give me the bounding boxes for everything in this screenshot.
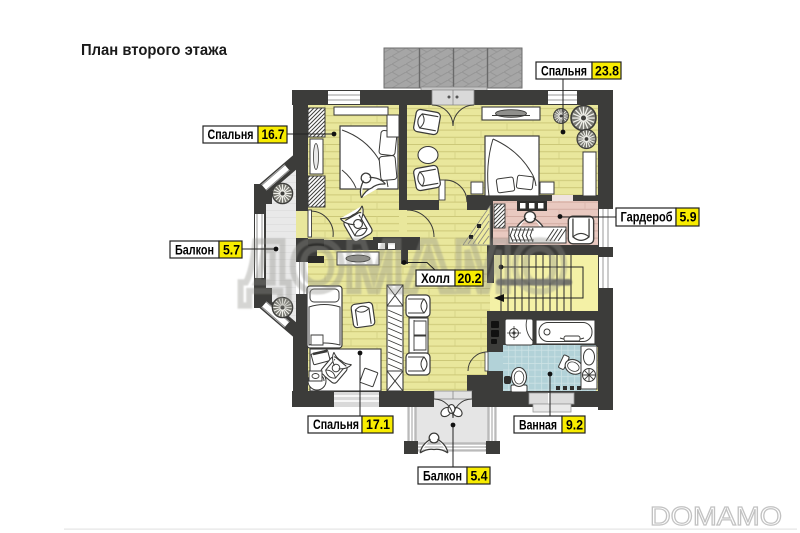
svg-text:Ванная: Ванная — [519, 417, 557, 433]
svg-text:Балкон: Балкон — [175, 242, 214, 258]
svg-text:Балкон: Балкон — [423, 468, 462, 484]
svg-text:Спальня: Спальня — [541, 63, 587, 79]
svg-text:17.1: 17.1 — [366, 416, 390, 432]
svg-text:Холл: Холл — [421, 270, 450, 286]
svg-text:План второго этажа: План второго этажа — [81, 42, 227, 59]
svg-text:5.7: 5.7 — [223, 242, 240, 258]
svg-text:5.9: 5.9 — [680, 209, 697, 225]
svg-text:23.8: 23.8 — [595, 63, 619, 79]
svg-text:9.2: 9.2 — [566, 417, 583, 433]
svg-text:20.2: 20.2 — [458, 270, 482, 286]
svg-text:DOMAMO: DOMAMO — [650, 501, 782, 531]
svg-text:5.4: 5.4 — [471, 468, 488, 484]
svg-text:ДОМАМО: ДОМАМО — [240, 227, 567, 307]
svg-text:Спальня: Спальня — [313, 416, 359, 432]
svg-text:Гардероб: Гардероб — [621, 209, 673, 225]
svg-text:16.7: 16.7 — [262, 126, 285, 142]
svg-text:Спальня: Спальня — [208, 126, 254, 142]
